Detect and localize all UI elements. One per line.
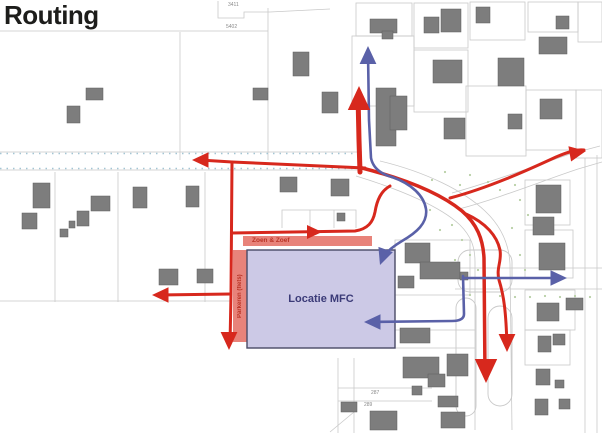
parcel-number-289: 289 — [364, 402, 372, 408]
kiss-and-ride-strip-label: Zoen & Zoef — [252, 237, 290, 244]
parcel-number-5402: 5402 — [226, 24, 237, 30]
mfc-location-label: Locatie MFC — [247, 250, 395, 348]
page-title: Routing — [4, 0, 99, 31]
parcel-number-3411: 3411 — [228, 2, 239, 8]
map-canvas — [0, 0, 602, 433]
routing-site-plan: Routing Locatie MFC Zoen & Zoef Parkeren… — [0, 0, 602, 433]
parcel-number-287: 287 — [371, 390, 379, 396]
bike-parking-strip-label: Parkeren (fiets) — [233, 250, 247, 342]
